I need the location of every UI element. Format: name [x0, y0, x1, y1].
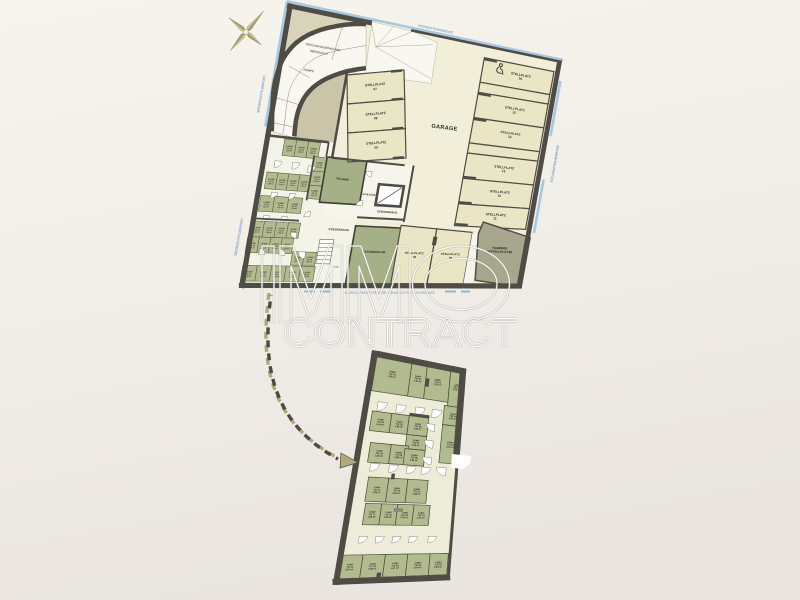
svg-text:12: 12 [497, 194, 501, 198]
svg-text:1,50 m²: 1,50 m² [316, 166, 323, 170]
svg-text:1,50 m²: 1,50 m² [311, 194, 318, 197]
svg-text:07: 07 [373, 87, 377, 91]
svg-text:CONTRACT: CONTRACT [283, 311, 517, 355]
svg-text:1,50 m²: 1,50 m² [277, 231, 284, 234]
svg-text:TECHNIKRAUM: TECHNIKRAUM [363, 250, 386, 255]
svg-text:1,50 m²: 1,50 m² [265, 231, 272, 234]
svg-text:11: 11 [493, 216, 497, 220]
svg-text:1,50 m²: 1,50 m² [313, 180, 320, 184]
svg-text:1,50 m²: 1,50 m² [306, 260, 313, 263]
svg-text:1,50 m²: 1,50 m² [253, 230, 260, 233]
svg-text:02: 02 [413, 255, 417, 259]
svg-text:1,50 m²: 1,50 m² [300, 185, 307, 188]
svg-text:1,50 m²: 1,50 m² [289, 184, 296, 187]
svg-text:1,50 m²: 1,50 m² [277, 206, 284, 209]
svg-text:2,5m: 2,5m [334, 267, 339, 269]
svg-text:13: 13 [502, 169, 506, 173]
svg-text:1,50 m²: 1,50 m² [283, 247, 290, 250]
svg-text:08: 08 [374, 116, 378, 120]
svg-text:1,50 m²: 1,50 m² [291, 207, 298, 210]
svg-text:1,50 m²: 1,50 m² [267, 182, 274, 185]
svg-text:1,50 m²: 1,50 m² [263, 205, 270, 208]
svg-text:09: 09 [374, 145, 378, 149]
svg-text:1,50 m²: 1,50 m² [278, 183, 285, 186]
